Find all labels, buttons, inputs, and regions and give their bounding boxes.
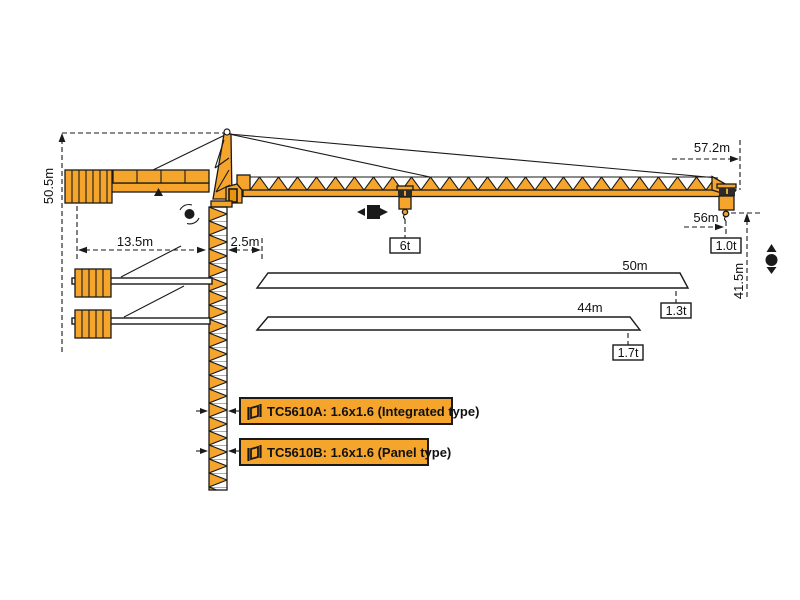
hoist-height-label: 41.5m (731, 263, 746, 299)
slewing-icon (180, 205, 199, 224)
diagram-canvas: 50.5m (0, 0, 800, 600)
hook-radius-label: 56m (693, 210, 718, 225)
dimension-hook-radius: 56m 1.0t (684, 210, 741, 253)
crane-specification-diagram: 50.5m (0, 0, 800, 600)
counter-jib (65, 170, 209, 203)
apex-pulley (224, 129, 230, 135)
trolley-travel-icon (357, 205, 388, 219)
mast-section-b-text: TC5610B: 1.6x1.6 (Panel type) (267, 445, 451, 460)
mast-section-label-a: TC5610A: 1.6x1.6 (Integrated type) (196, 398, 479, 424)
jib-variant-44m-load: 1.7t (618, 346, 639, 360)
counter-jib-length-label: 13.5m (117, 234, 153, 249)
tip-load-label: 1.0t (716, 239, 737, 253)
rear-clearance-label: 2.5m (231, 234, 260, 249)
hoist-icon (766, 244, 778, 274)
jib-variant-50m-length: 50m (622, 258, 647, 273)
max-load-label: 6t (400, 239, 411, 253)
jib-variant-50m: 50m 1.3t (257, 258, 691, 318)
counterweight-variant-2 (72, 310, 210, 338)
jib-variant-50m-load: 1.3t (666, 304, 687, 318)
mast-section-label-b: TC5610B: 1.6x1.6 (Panel type) (196, 439, 451, 465)
jib-variant-44m: 44m 1.7t (257, 300, 643, 360)
tie-rods (153, 134, 718, 178)
dimension-hoist-height: 41.5m (731, 213, 762, 300)
load-max: 6t (390, 219, 420, 253)
counterweight-blocks (65, 170, 112, 203)
total-height-label: 50.5m (41, 168, 56, 204)
mast-section-a-text: TC5610A: 1.6x1.6 (Integrated type) (267, 404, 479, 419)
dimension-rear-clearance: 2.5m (228, 234, 262, 262)
counterweight-variant-1 (72, 269, 212, 297)
jib (243, 177, 736, 197)
max-radius-label: 57.2m (694, 140, 730, 155)
jib-variant-44m-length: 44m (577, 300, 602, 315)
tower-mast (209, 201, 232, 490)
